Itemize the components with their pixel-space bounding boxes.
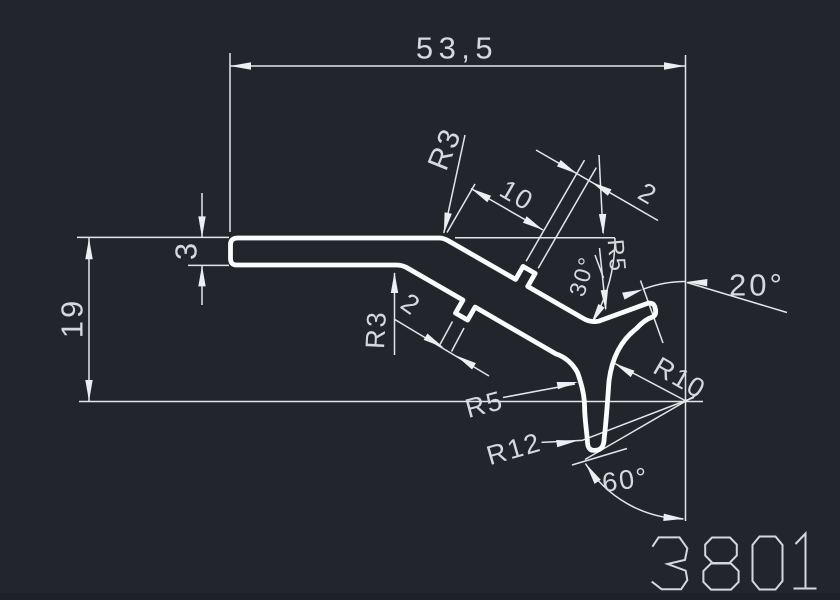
svg-text:53,5: 53,5 [416, 31, 498, 66]
svg-text:R12: R12 [483, 427, 545, 471]
svg-text:10: 10 [495, 174, 539, 217]
svg-text:R5: R5 [462, 385, 507, 424]
svg-text:20°: 20° [729, 268, 785, 303]
svg-text:2: 2 [633, 177, 663, 211]
svg-text:R10: R10 [648, 351, 711, 405]
svg-text:R3: R3 [422, 123, 468, 175]
svg-text:60°: 60° [600, 462, 651, 498]
svg-text:30°: 30° [564, 253, 601, 300]
svg-text:R5: R5 [603, 238, 632, 274]
svg-text:2: 2 [395, 287, 426, 321]
svg-text:R3: R3 [360, 309, 392, 349]
svg-text:19: 19 [55, 298, 90, 338]
svg-text:3: 3 [169, 240, 204, 260]
